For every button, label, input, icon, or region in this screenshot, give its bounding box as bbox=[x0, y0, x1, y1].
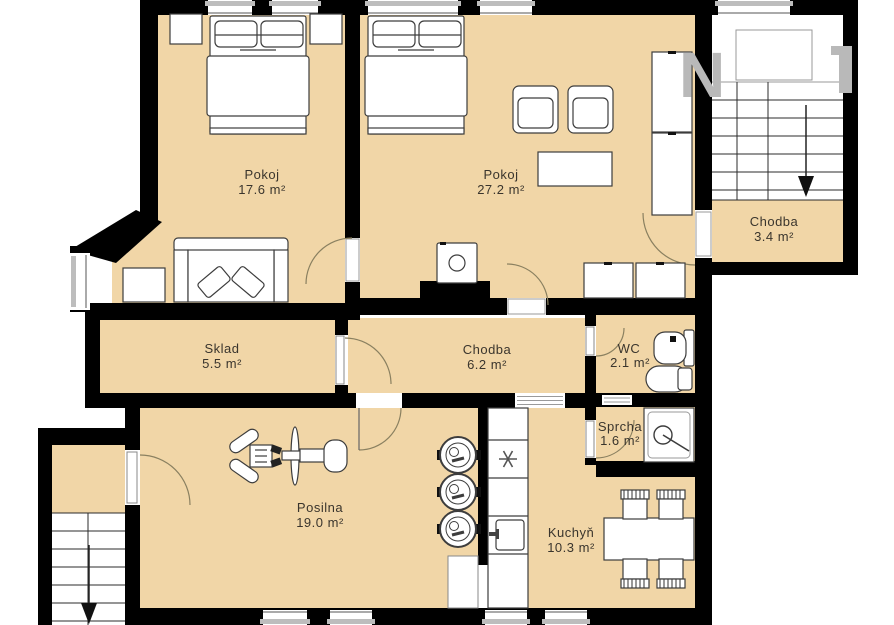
window bbox=[205, 0, 255, 15]
wall bbox=[585, 298, 596, 326]
window bbox=[70, 253, 90, 310]
wall bbox=[546, 298, 695, 315]
room-label-pokoj-1: Pokoj bbox=[244, 167, 279, 182]
chair bbox=[621, 490, 649, 519]
window bbox=[715, 0, 793, 15]
cabinet bbox=[584, 262, 633, 298]
watermark-letter: N bbox=[679, 39, 725, 111]
washing-machine bbox=[437, 242, 477, 283]
small-bench bbox=[448, 556, 478, 608]
room-label-kuchyn: Kuchyň bbox=[548, 525, 594, 540]
door-leaf bbox=[586, 421, 594, 457]
room-area-wc: 2.1 m² bbox=[610, 355, 650, 370]
room-area-posilna: 19.0 m² bbox=[296, 515, 344, 530]
dining-table bbox=[604, 518, 694, 560]
sofa bbox=[174, 238, 288, 302]
door-leaf bbox=[336, 336, 344, 384]
armchair bbox=[568, 86, 613, 133]
armchair bbox=[513, 86, 558, 133]
cabinet bbox=[636, 262, 685, 298]
shower-tray bbox=[644, 408, 694, 462]
window bbox=[482, 610, 530, 625]
nightstand bbox=[310, 14, 342, 44]
chair bbox=[657, 559, 685, 588]
room-area-chodba-6: 6.2 m² bbox=[467, 357, 507, 372]
wall bbox=[695, 262, 858, 275]
wall bbox=[843, 0, 858, 275]
window bbox=[477, 0, 535, 15]
round-gym-equipment bbox=[437, 437, 481, 547]
room-label-sklad: Sklad bbox=[204, 341, 239, 356]
coffee-table bbox=[538, 152, 612, 186]
wall bbox=[125, 608, 710, 625]
door-frame bbox=[346, 239, 359, 281]
room-label-pokoj-2: Pokoj bbox=[483, 167, 518, 182]
floor-plan-svg: N Pokoj 17.6 m² Pokoj 27.2 m² Chodba 3.4… bbox=[0, 0, 894, 625]
wall bbox=[140, 0, 158, 224]
room-label-wc: WC bbox=[618, 341, 641, 356]
room-label-chodba-3: Chodba bbox=[750, 214, 799, 229]
room-area-sprcha: 1.6 m² bbox=[600, 433, 640, 448]
wall bbox=[585, 395, 596, 420]
wall-chimney bbox=[420, 281, 490, 312]
wall bbox=[85, 303, 360, 320]
wall bbox=[345, 0, 360, 238]
door-frame bbox=[696, 212, 711, 256]
room-area-sklad: 5.5 m² bbox=[202, 356, 242, 371]
floor-stair-landing bbox=[52, 445, 125, 513]
window bbox=[327, 610, 375, 625]
door-leaf bbox=[586, 327, 594, 355]
window bbox=[365, 0, 461, 15]
room-area-kuchyn: 10.3 m² bbox=[547, 540, 595, 555]
chair bbox=[657, 490, 685, 519]
room-area-pokoj-2: 27.2 m² bbox=[477, 182, 525, 197]
wall-niche bbox=[602, 395, 632, 405]
floor-plan-page: N Pokoj 17.6 m² Pokoj 27.2 m² Chodba 3.4… bbox=[0, 0, 894, 625]
wall bbox=[125, 505, 140, 625]
passage-opening bbox=[515, 393, 565, 408]
toilet bbox=[654, 330, 694, 366]
wall bbox=[38, 428, 52, 625]
room-area-chodba-3: 3.4 m² bbox=[754, 229, 794, 244]
room-area-pokoj-1: 17.6 m² bbox=[238, 182, 286, 197]
chair bbox=[621, 559, 649, 588]
kitchen-counter bbox=[488, 408, 528, 608]
door-leaf bbox=[127, 452, 137, 503]
wall bbox=[596, 461, 695, 477]
room-label-chodba-6: Chodba bbox=[463, 342, 512, 357]
door-gap bbox=[356, 393, 402, 408]
wall bbox=[585, 356, 596, 395]
room-label-sprcha: Sprcha bbox=[598, 419, 642, 434]
window bbox=[260, 610, 310, 625]
double-bed bbox=[207, 16, 309, 134]
wall bbox=[335, 303, 348, 335]
window bbox=[269, 0, 321, 15]
door-frame bbox=[508, 299, 545, 314]
wall bbox=[585, 458, 596, 465]
sink bbox=[646, 366, 692, 392]
wall bbox=[38, 428, 140, 445]
side-table bbox=[123, 268, 165, 302]
nightstand bbox=[170, 14, 202, 44]
double-bed bbox=[365, 16, 467, 134]
wall bbox=[402, 393, 515, 408]
wall bbox=[695, 258, 712, 625]
room-label-posilna: Posilna bbox=[297, 500, 343, 515]
window bbox=[542, 610, 590, 625]
